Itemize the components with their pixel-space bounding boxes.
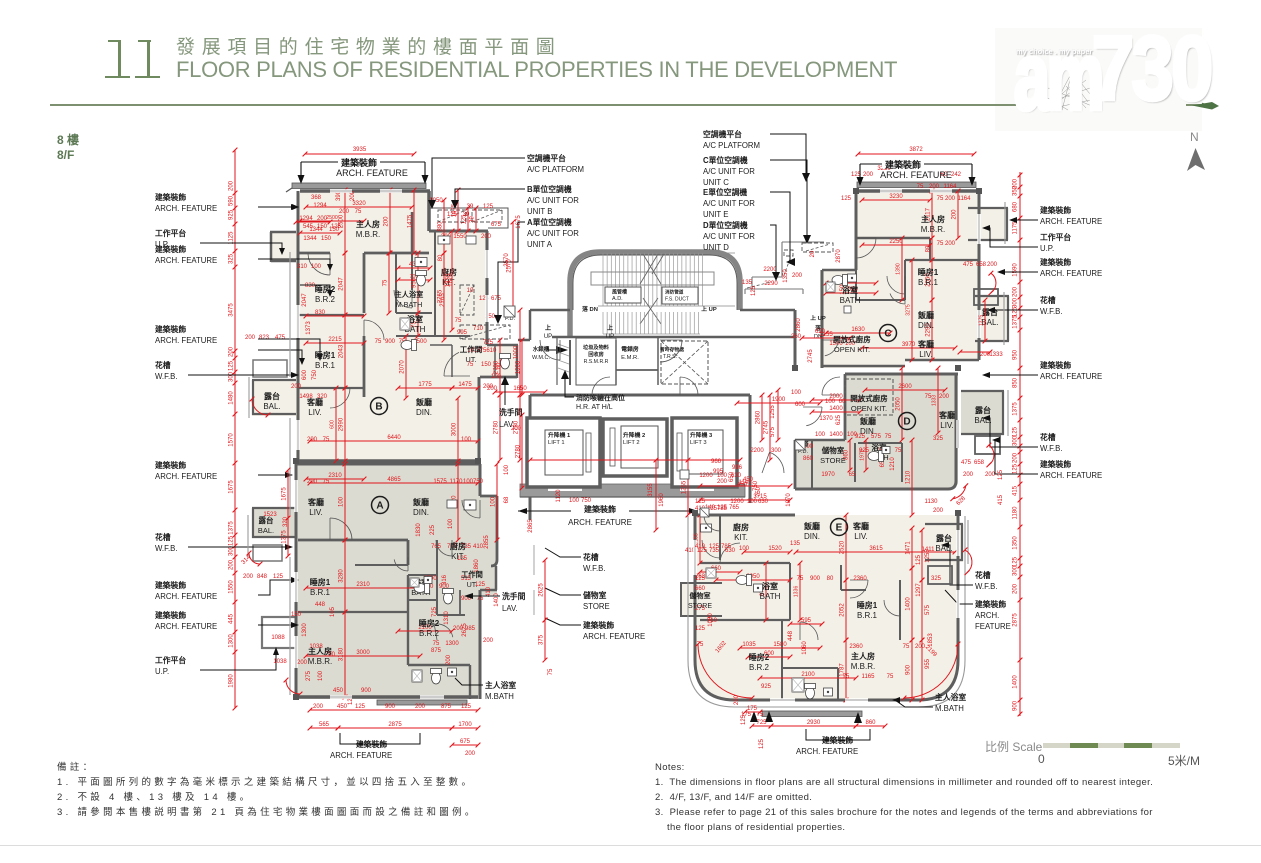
svg-text:75: 75 <box>433 641 440 647</box>
svg-text:升降機 1: 升降機 1 <box>548 431 571 439</box>
svg-text:410: 410 <box>473 544 484 550</box>
svg-text:3180: 3180 <box>339 647 345 661</box>
svg-text:花槽: 花槽 <box>975 570 991 580</box>
svg-text:飯廳: 飯廳 <box>859 416 876 426</box>
svg-text:1400: 1400 <box>829 406 843 412</box>
svg-text:450: 450 <box>333 688 344 694</box>
svg-text:B.R.2: B.R.2 <box>315 295 336 304</box>
svg-text:200: 200 <box>863 172 874 178</box>
svg-text:睡房1: 睡房1 <box>857 600 878 610</box>
svg-text:1125: 1125 <box>229 231 235 245</box>
svg-text:1550: 1550 <box>453 234 467 240</box>
svg-text:飯廳: 飯廳 <box>412 497 429 507</box>
svg-text:725: 725 <box>483 340 494 346</box>
svg-text:80: 80 <box>926 245 932 252</box>
svg-text:2780: 2780 <box>516 444 522 458</box>
svg-text:2870: 2870 <box>836 249 842 263</box>
svg-text:A.D.: A.D. <box>612 296 623 302</box>
svg-text:建築裝飾: 建築裝飾 <box>583 504 616 514</box>
svg-text:260: 260 <box>791 334 802 340</box>
svg-text:75: 75 <box>885 434 892 440</box>
svg-text:ARCH. FEATURE: ARCH. FEATURE <box>336 168 408 178</box>
svg-text:150: 150 <box>291 612 302 618</box>
svg-text:主人浴室: 主人浴室 <box>485 680 516 690</box>
svg-text:1344: 1344 <box>303 236 317 242</box>
svg-text:2310: 2310 <box>356 582 370 588</box>
svg-text:M.B.R.: M.B.R. <box>851 662 875 671</box>
svg-text:建築裝飾: 建築裝飾 <box>885 159 921 170</box>
svg-text:3000: 3000 <box>356 650 370 656</box>
svg-text:675: 675 <box>491 222 502 228</box>
svg-text:ARCH. FEATURE: ARCH. FEATURE <box>155 336 217 345</box>
svg-text:W.F.B.: W.F.B. <box>583 564 606 573</box>
svg-text:3872: 3872 <box>909 147 923 153</box>
svg-text:ARCH. FEATURE: ARCH. FEATURE <box>155 622 217 631</box>
svg-text:900: 900 <box>361 688 372 694</box>
svg-text:E單位空調機: E單位空調機 <box>703 187 747 197</box>
svg-text:DIN.: DIN. <box>413 508 429 517</box>
svg-text:150: 150 <box>321 236 332 242</box>
svg-text:工作平台: 工作平台 <box>155 655 186 665</box>
svg-text:125: 125 <box>273 574 284 580</box>
svg-text:448: 448 <box>788 630 794 641</box>
svg-text:浴室: 浴室 <box>842 285 858 295</box>
svg-text:200: 200 <box>963 472 974 478</box>
svg-text:B.R.2: B.R.2 <box>749 663 770 672</box>
svg-text:1960: 1960 <box>659 493 665 507</box>
svg-text:睡房1: 睡房1 <box>315 350 336 360</box>
svg-text:200: 200 <box>297 660 308 666</box>
svg-text:900: 900 <box>810 576 821 582</box>
svg-text:消防管道: 消防管道 <box>665 289 684 296</box>
svg-text:睡房1: 睡房1 <box>918 267 939 277</box>
svg-text:風管槽: 風管槽 <box>612 289 627 296</box>
svg-text:950: 950 <box>1013 349 1019 360</box>
svg-text:2745: 2745 <box>808 349 814 363</box>
svg-text:E: E <box>836 523 843 534</box>
svg-text:1120: 1120 <box>556 489 562 503</box>
svg-text:475: 475 <box>961 460 972 466</box>
svg-text:1375: 1375 <box>979 315 985 327</box>
svg-text:A/C UNIT FOR: A/C UNIT FOR <box>527 196 579 205</box>
svg-text:C單位空調機: C單位空調機 <box>703 155 748 165</box>
svg-text:200: 200 <box>939 394 950 400</box>
svg-text:200: 200 <box>307 479 318 485</box>
svg-text:建築裝飾: 建築裝飾 <box>1039 205 1071 215</box>
svg-text:主人房: 主人房 <box>921 214 945 224</box>
svg-text:1000: 1000 <box>708 613 714 627</box>
svg-text:300: 300 <box>1013 435 1019 446</box>
svg-text:LAV.: LAV. <box>499 420 515 429</box>
svg-text:1900: 1900 <box>772 397 786 403</box>
svg-text:125: 125 <box>461 704 472 710</box>
svg-text:314: 314 <box>241 554 253 566</box>
svg-text:睡房2: 睡房2 <box>419 618 440 628</box>
svg-text:建築裝飾: 建築裝飾 <box>154 324 186 334</box>
svg-text:LIV.: LIV. <box>308 408 322 417</box>
svg-text:主人房: 主人房 <box>308 646 332 656</box>
svg-text:工作平台: 工作平台 <box>1040 232 1071 242</box>
svg-text:1175: 1175 <box>1013 221 1019 235</box>
svg-text:200: 200 <box>792 273 803 279</box>
svg-text:ARCH. FEATURE: ARCH. FEATURE <box>330 751 392 760</box>
svg-text:68: 68 <box>504 496 510 503</box>
svg-text:STORE: STORE <box>688 603 712 610</box>
svg-text:1570: 1570 <box>229 433 235 447</box>
svg-text:200: 200 <box>717 479 728 485</box>
svg-text:洗手間: 洗手間 <box>499 407 523 417</box>
svg-text:1336: 1336 <box>794 586 800 598</box>
svg-text:300: 300 <box>229 371 235 382</box>
svg-text:1294: 1294 <box>299 216 313 222</box>
svg-text:儲物室: 儲物室 <box>689 591 711 600</box>
svg-text:200: 200 <box>1013 452 1019 463</box>
svg-text:2865: 2865 <box>528 519 534 533</box>
svg-text:575: 575 <box>770 426 776 437</box>
svg-text:200: 200 <box>929 184 940 190</box>
svg-text:300: 300 <box>1013 565 1019 576</box>
svg-text:D單位空調機: D單位空調機 <box>703 220 748 230</box>
svg-text:200: 200 <box>952 209 958 220</box>
svg-text:1088: 1088 <box>271 635 285 641</box>
svg-text:M.BATH: M.BATH <box>935 704 964 713</box>
svg-text:80: 80 <box>438 254 444 261</box>
svg-text:睡房2: 睡房2 <box>749 652 770 662</box>
svg-text:100: 100 <box>318 670 324 681</box>
svg-text:1130: 1130 <box>925 499 939 505</box>
svg-text:花槽: 花槽 <box>155 532 171 542</box>
svg-text:1775: 1775 <box>418 382 432 388</box>
svg-text:2990: 2990 <box>339 417 345 431</box>
svg-text:750: 750 <box>473 479 484 485</box>
svg-text:ARCH. FEATURE: ARCH. FEATURE <box>155 472 217 481</box>
svg-text:1970: 1970 <box>860 449 866 461</box>
svg-text:U.P.: U.P. <box>155 667 169 676</box>
svg-text:浴室: 浴室 <box>762 581 778 591</box>
svg-text:39: 39 <box>463 212 470 218</box>
svg-text:2860: 2860 <box>796 318 802 332</box>
svg-text:2860: 2860 <box>756 410 762 424</box>
svg-text:3155: 3155 <box>648 483 654 497</box>
svg-text:STORE: STORE <box>583 602 610 611</box>
svg-text:75: 75 <box>937 241 944 247</box>
svg-text:建築裝飾: 建築裝飾 <box>154 610 186 620</box>
svg-text:B.R.1: B.R.1 <box>918 278 939 287</box>
svg-text:OPEN KIT.: OPEN KIT. <box>834 345 870 354</box>
svg-text:LIV.: LIV. <box>854 532 868 541</box>
svg-text:75: 75 <box>477 596 484 602</box>
svg-text:W.F.B.: W.F.B. <box>155 372 178 381</box>
svg-text:1675: 1675 <box>282 487 288 501</box>
svg-text:75: 75 <box>355 209 362 215</box>
svg-text:100: 100 <box>747 499 758 505</box>
svg-text:A/C UNIT FOR: A/C UNIT FOR <box>703 232 755 241</box>
svg-text:UNIT A: UNIT A <box>527 240 553 249</box>
svg-text:200: 200 <box>229 559 235 570</box>
svg-text:R.S.M.R.R: R.S.M.R.R <box>584 359 609 365</box>
svg-text:1787: 1787 <box>840 663 846 677</box>
svg-text:W.F.B.: W.F.B. <box>155 544 178 553</box>
svg-text:200: 200 <box>307 437 318 443</box>
svg-text:823: 823 <box>259 335 270 341</box>
svg-text:1375: 1375 <box>229 521 235 535</box>
svg-text:ARCH. FEATURE: ARCH. FEATURE <box>568 518 632 527</box>
svg-text:KIT.: KIT. <box>451 552 465 561</box>
svg-text:75: 75 <box>903 644 910 650</box>
svg-text:B: B <box>375 402 382 413</box>
svg-text:A/C UNIT FOR: A/C UNIT FOR <box>527 229 579 238</box>
svg-text:2930: 2930 <box>807 720 821 726</box>
svg-text:135: 135 <box>742 280 753 286</box>
svg-text:625: 625 <box>836 414 842 425</box>
svg-text:1575: 1575 <box>433 479 447 485</box>
svg-text:空調機平台: 空調機平台 <box>703 129 742 139</box>
svg-text:275: 275 <box>306 670 312 681</box>
svg-text:3280: 3280 <box>339 569 345 583</box>
svg-text:建築裝飾: 建築裝飾 <box>1039 459 1071 469</box>
svg-text:658: 658 <box>974 460 985 466</box>
svg-text:415: 415 <box>998 494 1004 505</box>
svg-text:ARCH. FEATURE: ARCH. FEATURE <box>155 592 217 601</box>
svg-text:996: 996 <box>732 465 743 471</box>
svg-text:花槽: 花槽 <box>1040 295 1056 305</box>
svg-text:20: 20 <box>810 250 816 257</box>
svg-text:375: 375 <box>539 634 545 645</box>
svg-text:建築裝飾: 建築裝飾 <box>341 157 377 168</box>
svg-text:1210: 1210 <box>890 457 896 471</box>
svg-text:880: 880 <box>438 221 444 232</box>
svg-text:1375: 1375 <box>1013 315 1019 329</box>
svg-text:175: 175 <box>741 712 752 718</box>
svg-text:630: 630 <box>758 499 769 505</box>
svg-text:LIFT 1: LIFT 1 <box>548 440 565 446</box>
svg-text:75: 75 <box>323 437 330 443</box>
svg-text:1333: 1333 <box>989 352 1003 358</box>
svg-text:建築裝飾: 建築裝飾 <box>154 244 186 254</box>
svg-text:客廳: 客廳 <box>307 497 324 507</box>
svg-text:T.R.S.: T.R.S. <box>663 354 677 360</box>
svg-text:1400: 1400 <box>1013 675 1019 689</box>
svg-text:ARCH. FEATURE: ARCH. FEATURE <box>1040 269 1102 278</box>
svg-text:125: 125 <box>355 704 366 710</box>
svg-text:KIT.: KIT. <box>734 533 748 542</box>
svg-text:575: 575 <box>871 434 882 440</box>
svg-text:135: 135 <box>790 541 801 547</box>
svg-text:200: 200 <box>245 335 256 341</box>
svg-text:上: 上 <box>607 324 613 332</box>
svg-text:125: 125 <box>1013 463 1019 474</box>
svg-text:75: 75 <box>887 674 894 680</box>
svg-text:1350: 1350 <box>783 269 789 283</box>
svg-text:675: 675 <box>460 739 471 745</box>
svg-text:A: A <box>376 501 383 512</box>
svg-text:848: 848 <box>257 574 268 580</box>
svg-text:850: 850 <box>1013 377 1019 388</box>
svg-text:客廳: 客廳 <box>917 339 934 349</box>
svg-text:M.BATH: M.BATH <box>485 692 514 701</box>
svg-text:200: 200 <box>339 209 350 215</box>
svg-text:ARCH. FEATURE: ARCH. FEATURE <box>1040 471 1102 480</box>
svg-text:UT.: UT. <box>467 580 478 589</box>
svg-text:B.R.1: B.R.1 <box>857 611 878 620</box>
svg-text:主人浴室: 主人浴室 <box>935 692 966 702</box>
svg-text:100: 100 <box>461 437 472 443</box>
svg-text:BATH: BATH <box>760 592 781 601</box>
svg-text:1255: 1255 <box>770 405 776 419</box>
svg-text:2855: 2855 <box>484 535 490 549</box>
svg-text:ARCH. FEATURE: ARCH. FEATURE <box>1040 217 1102 226</box>
svg-text:900: 900 <box>906 664 912 675</box>
svg-text:75: 75 <box>383 279 389 286</box>
svg-text:325: 325 <box>933 436 944 442</box>
svg-text:2875: 2875 <box>388 722 402 728</box>
svg-text:660: 660 <box>695 586 706 592</box>
svg-text:W.F.B.: W.F.B. <box>975 582 998 591</box>
svg-text:1300: 1300 <box>302 623 308 637</box>
svg-text:花槽: 花槽 <box>583 552 599 562</box>
svg-text:300: 300 <box>1013 297 1019 308</box>
svg-text:1294: 1294 <box>313 203 327 209</box>
svg-text:1400: 1400 <box>906 597 912 611</box>
svg-text:開放式廚房: 開放式廚房 <box>833 334 871 344</box>
svg-text:368: 368 <box>311 195 322 201</box>
svg-text:75: 75 <box>937 196 944 202</box>
svg-text:600: 600 <box>330 420 336 429</box>
svg-text:860: 860 <box>803 456 814 462</box>
svg-text:310: 310 <box>297 264 308 270</box>
svg-text:A/C PLATFORM: A/C PLATFORM <box>703 141 760 150</box>
svg-text:DIN.: DIN. <box>416 408 432 417</box>
svg-text:飯廳: 飯廳 <box>917 310 934 320</box>
svg-text:200: 200 <box>465 751 476 757</box>
svg-text:B.R.1: B.R.1 <box>310 588 331 597</box>
svg-text:125: 125 <box>759 738 765 749</box>
svg-text:B.R.2: B.R.2 <box>419 629 440 638</box>
svg-text:B.R.1: B.R.1 <box>315 361 336 370</box>
svg-text:飯廳: 飯廳 <box>803 521 820 531</box>
svg-text:ARCH. FEATURE: ARCH. FEATURE <box>155 204 217 213</box>
svg-text:450: 450 <box>337 704 348 710</box>
svg-text:75610: 75610 <box>480 348 497 354</box>
svg-text:2625: 2625 <box>539 583 545 597</box>
svg-text:1475: 1475 <box>458 382 472 388</box>
svg-text:UP: UP <box>544 334 552 340</box>
svg-text:1970: 1970 <box>821 472 835 478</box>
svg-text:200: 200 <box>945 241 956 247</box>
svg-text:65: 65 <box>849 472 856 478</box>
svg-text:UT.: UT. <box>465 355 476 364</box>
svg-text:1170: 1170 <box>450 479 464 485</box>
svg-text:2600: 2600 <box>898 384 912 390</box>
svg-text:1310: 1310 <box>444 611 450 625</box>
svg-text:M.B.R.: M.B.R. <box>308 657 332 666</box>
svg-text:80: 80 <box>827 576 834 582</box>
svg-text:花槽: 花槽 <box>1040 432 1056 442</box>
svg-text:1164: 1164 <box>958 196 972 202</box>
svg-text:966: 966 <box>711 459 722 465</box>
svg-text:LIFT 2: LIFT 2 <box>623 440 640 446</box>
svg-text:300: 300 <box>771 448 782 454</box>
svg-text:工作間: 工作間 <box>460 344 483 354</box>
svg-text:1255: 1255 <box>925 549 931 563</box>
svg-text:75: 75 <box>548 668 554 675</box>
svg-text:1200: 1200 <box>699 473 713 479</box>
svg-text:落 DN: 落 DN <box>582 305 598 313</box>
svg-text:1210: 1210 <box>906 470 912 484</box>
svg-text:消防喉轆在高位: 消防喉轆在高位 <box>576 393 625 402</box>
svg-text:200: 200 <box>384 216 390 227</box>
svg-text:200: 200 <box>1013 583 1019 594</box>
svg-text:900: 900 <box>1013 700 1019 711</box>
svg-text:658: 658 <box>976 262 987 268</box>
svg-text:200: 200 <box>317 216 328 222</box>
svg-text:2875: 2875 <box>1013 613 1019 627</box>
svg-text:1523: 1523 <box>263 512 277 518</box>
svg-text:1980: 1980 <box>229 674 235 688</box>
svg-text:150: 150 <box>329 227 340 233</box>
svg-text:1675: 1675 <box>229 480 235 494</box>
svg-text:2215: 2215 <box>328 337 342 343</box>
svg-text:2050: 2050 <box>896 397 902 411</box>
svg-text:650: 650 <box>729 471 735 482</box>
svg-text:1000: 1000 <box>514 345 520 359</box>
svg-text:3230: 3230 <box>889 194 903 200</box>
svg-text:1297: 1297 <box>916 583 922 597</box>
svg-text:BATH: BATH <box>840 296 861 305</box>
svg-text:100: 100 <box>311 264 322 270</box>
svg-text:75: 75 <box>323 479 330 485</box>
svg-text:1390: 1390 <box>896 263 902 275</box>
svg-text:955: 955 <box>925 658 931 669</box>
svg-text:D: D <box>903 417 910 428</box>
svg-text:DIN.: DIN. <box>918 321 934 330</box>
svg-text:1590: 1590 <box>1013 263 1019 277</box>
svg-text:建築裝飾: 建築裝飾 <box>974 599 1006 609</box>
svg-text:LIV.: LIV. <box>309 508 323 517</box>
svg-text:410: 410 <box>486 586 492 597</box>
svg-text:1580: 1580 <box>773 642 787 648</box>
svg-text:75: 75 <box>455 318 462 324</box>
svg-text:200: 200 <box>229 180 235 191</box>
svg-text:花槽: 花槽 <box>155 360 171 370</box>
svg-text:450: 450 <box>743 477 754 483</box>
svg-text:680: 680 <box>1013 201 1019 212</box>
svg-text:475: 475 <box>275 335 286 341</box>
svg-text:2047: 2047 <box>339 277 345 291</box>
svg-text:DIN.: DIN. <box>804 532 820 541</box>
svg-text:710: 710 <box>473 326 484 332</box>
svg-text:1060: 1060 <box>802 641 808 655</box>
svg-text:3970: 3970 <box>902 342 916 348</box>
svg-text:1180: 1180 <box>1013 506 1019 520</box>
svg-text:BAL.: BAL. <box>974 416 991 425</box>
svg-text:1300: 1300 <box>445 641 459 647</box>
svg-text:廚房: 廚房 <box>733 522 749 532</box>
svg-text:100: 100 <box>739 546 750 552</box>
svg-text:1255: 1255 <box>682 480 688 494</box>
svg-text:飯廳: 飯廳 <box>415 397 432 407</box>
svg-text:1700: 1700 <box>458 722 472 728</box>
svg-text:2100: 2100 <box>801 672 815 678</box>
svg-text:電錶房: 電錶房 <box>621 345 639 353</box>
svg-text:448: 448 <box>315 602 326 608</box>
svg-text:100: 100 <box>815 432 826 438</box>
svg-text:垃圾及物料: 垃圾及物料 <box>583 343 610 351</box>
svg-text:E.M.R.: E.M.R. <box>621 355 639 361</box>
svg-text:785: 785 <box>721 544 732 550</box>
svg-text:200: 200 <box>487 386 498 392</box>
svg-text:FEATURE: FEATURE <box>975 622 1011 631</box>
